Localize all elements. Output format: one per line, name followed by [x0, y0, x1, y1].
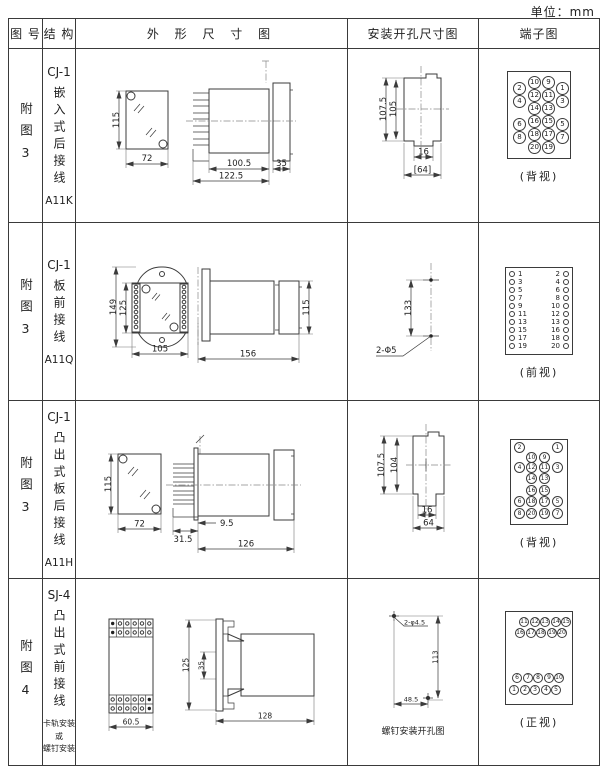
- outline-drawing-svg: 115 72 31.5 9.5 126: [76, 401, 347, 578]
- terminal-row: 9 10: [506, 302, 572, 310]
- figure-number-cell: 附图3: [8, 48, 42, 222]
- model-label: SJ-4: [48, 588, 71, 602]
- terminal-circle: 2: [514, 442, 525, 453]
- hole-spec-label: 2-φ4.5: [404, 619, 425, 627]
- terminal-circle: 3: [530, 685, 540, 695]
- mount-note-line: 或: [43, 731, 75, 744]
- terminal-circle: 14: [551, 617, 561, 627]
- terminal-circle: 12: [528, 89, 541, 102]
- terminal-circle: 5: [552, 496, 563, 507]
- install-caption: 螺钉安装开孔图: [381, 725, 444, 737]
- dim-label: 115: [104, 476, 114, 492]
- mount-type-label: 凸出式前接线: [53, 609, 65, 711]
- terminal-circle: 2: [520, 685, 530, 695]
- install-hole-svg: 107.5 105 16 [64]: [348, 49, 478, 222]
- terminal-row: 17 18: [506, 334, 572, 342]
- terminal-number-right: 10: [539, 303, 563, 310]
- terminal-circle: [563, 311, 569, 317]
- dim-label: 122.5: [219, 172, 243, 182]
- terminal-box: 1092112114314131615651817872019: [507, 71, 571, 159]
- terminal-circle: [563, 343, 569, 349]
- terminal-circle: 11: [542, 89, 555, 102]
- terminal-diagram-cell: 1112131415161718192067891012345 (正视): [478, 578, 599, 765]
- terminal-circle: 17: [526, 628, 536, 638]
- spec-table: 图 号 结 构 外 形 尺 寸 图 安装开孔尺寸图 端子图 附图3 CJ-1 嵌…: [8, 18, 600, 766]
- terminal-number-right: 2: [539, 271, 563, 278]
- terminal-circle: [563, 319, 569, 325]
- dim-label: 115: [112, 112, 122, 128]
- mount-type-label: 凸出式板后接线: [53, 431, 65, 550]
- terminal-circle: 18: [528, 128, 541, 141]
- terminal-box: 1 2 3 4 5 6 7 8: [505, 267, 573, 355]
- structure-cell: CJ-1 嵌入式后接线 A11K: [42, 48, 75, 222]
- structure-cell: CJ-1 凸出式板后接线 A11H: [42, 400, 75, 578]
- terminal-circle: 1: [552, 442, 563, 453]
- install-hole-drawing-cell: 107.5 105 16 [64]: [347, 48, 478, 222]
- terminal-circle: [563, 335, 569, 341]
- terminal-circle: 13: [542, 102, 555, 115]
- terminal-row: 3 4: [506, 278, 572, 286]
- terminal-diagram-cell: 1092112114314131615651817872019 (背视): [478, 48, 599, 222]
- terminal-circle: 9: [544, 673, 554, 683]
- terminal-circle: 19: [539, 508, 550, 519]
- terminal-box: 2110941211314131615618175820197: [510, 439, 568, 525]
- column-header-outline: 外 形 尺 寸 图: [75, 18, 347, 48]
- terminal-circle: 19: [542, 141, 555, 154]
- figure-number-cell: 附图3: [8, 222, 42, 400]
- figure-number: 附图4: [16, 639, 35, 706]
- dim-label: 107.5: [377, 453, 387, 477]
- dim-label: 126: [238, 540, 254, 550]
- terminal-circle: 18: [526, 496, 537, 507]
- dim-label: 125: [119, 300, 129, 316]
- dim-label: 35: [276, 159, 287, 169]
- terminal-number-left: 5: [515, 287, 539, 294]
- structure-cell: SJ-4 凸出式前接线 卡轨安装 或 螺钉安装: [42, 578, 75, 765]
- outline-drawing-cell: 115 72 100.5 122.5 35: [75, 48, 347, 222]
- terminal-circle: 15: [542, 115, 555, 128]
- terminal-circle: 8: [513, 131, 526, 144]
- terminal-circle: 8: [533, 673, 543, 683]
- terminal-row: 1 2: [506, 270, 572, 278]
- terminal-number-left: 9: [515, 303, 539, 310]
- terminal-circle: 13: [540, 617, 550, 627]
- terminal-circle: 5: [551, 685, 561, 695]
- terminal-number-right: 8: [539, 295, 563, 302]
- outline-drawing-svg: 60.5 125 35 128: [76, 579, 347, 765]
- figure-number-cell: 附图3: [8, 400, 42, 578]
- terminal-circle: 6: [513, 118, 526, 131]
- dim-label: 125: [182, 658, 191, 673]
- dim-label: 48.5: [404, 696, 418, 704]
- terminal-row: 13 13: [506, 318, 572, 326]
- terminal-circle: 5: [556, 118, 569, 131]
- terminal-circle: 10: [554, 673, 564, 683]
- terminal-row: 11 12: [506, 310, 572, 318]
- dim-label: 149: [109, 299, 119, 315]
- mount-note: 卡轨安装 或 螺钉安装: [43, 718, 75, 756]
- terminal-circle: 1: [509, 685, 519, 695]
- figure-number: 附图3: [16, 278, 35, 345]
- terminal-circle: 1: [556, 82, 569, 95]
- terminal-circle: 20: [526, 508, 537, 519]
- terminal-circle: 20: [528, 141, 541, 154]
- model-label: CJ-1: [47, 410, 70, 424]
- dim-label: 104: [390, 457, 400, 473]
- terminal-circle: 9: [542, 76, 555, 89]
- hole-spec-label: 2-Φ5: [376, 346, 397, 356]
- dim-label: 64: [423, 519, 434, 529]
- terminal-number-left: 17: [515, 335, 539, 342]
- terminal-circle: [563, 303, 569, 309]
- terminal-circle: 12: [526, 462, 537, 473]
- terminal-circle: 17: [539, 496, 550, 507]
- terminal-number-left: 11: [515, 311, 539, 318]
- terminal-circle: 6: [514, 496, 525, 507]
- terminal-circle: 15: [539, 485, 550, 496]
- terminal-circle: 16: [515, 628, 525, 638]
- terminal-diagram-cell: 1 2 3 4 5 6 7 8: [478, 222, 599, 400]
- dim-label: 105: [152, 345, 168, 355]
- terminal-circle: 4: [541, 685, 551, 695]
- terminal-circle: [563, 287, 569, 293]
- terminal-box: 1112131415161718192067891012345: [505, 611, 573, 705]
- terminal-number-right: 13: [539, 319, 563, 326]
- dim-label: [64]: [414, 166, 431, 176]
- terminal-number-right: 18: [539, 335, 563, 342]
- terminal-circle: 10: [528, 76, 541, 89]
- dim-label: 107.5: [379, 97, 389, 121]
- terminal-row: 7 8: [506, 294, 572, 302]
- dim-label: 156: [240, 350, 256, 360]
- terminal-circle: 4: [513, 95, 526, 108]
- terminal-circle: [563, 271, 569, 277]
- dim-label: 115: [302, 299, 312, 315]
- dim-label: 60.5: [123, 718, 140, 727]
- install-hole-drawing-cell: 133 2-Φ5: [347, 222, 478, 400]
- dim-label: 9.5: [220, 519, 234, 529]
- terminal-number-left: 3: [515, 279, 539, 286]
- terminal-number-right: 6: [539, 287, 563, 294]
- document-page: 单位：mm 图 号 结 构 外 形 尺 寸 图 安装开孔尺寸图 端子图 附图3 …: [0, 0, 607, 771]
- view-caption: (背视): [520, 168, 559, 184]
- column-header-terminal: 端子图: [478, 18, 599, 48]
- terminal-circle: 6: [512, 673, 522, 683]
- terminal-circle: 2: [513, 82, 526, 95]
- terminal-circle: 3: [552, 462, 563, 473]
- figure-number: 附图3: [16, 456, 35, 523]
- terminal-circle: 19: [547, 628, 557, 638]
- dim-label: 105: [389, 101, 399, 117]
- install-hole-svg: 107.5 104 16 64: [348, 401, 478, 578]
- type-code-label: A11Q: [45, 354, 74, 366]
- dim-label: 133: [404, 300, 414, 316]
- install-hole-svg: 133 2-Φ5: [348, 223, 478, 400]
- terminal-circle: 4: [514, 462, 525, 473]
- figure-number-cell: 附图4: [8, 578, 42, 765]
- terminal-circle: 14: [526, 473, 537, 484]
- terminal-circle: 7: [523, 673, 533, 683]
- model-label: CJ-1: [47, 65, 70, 79]
- install-hole-drawing-cell: 2-φ4.5 113 48.5 螺钉安装开孔图: [347, 578, 478, 765]
- dim-label: 16: [418, 148, 429, 158]
- terminal-circle: 12: [530, 617, 540, 627]
- terminal-circle: 11: [539, 462, 550, 473]
- install-hole-drawing-cell: 107.5 104 16 64: [347, 400, 478, 578]
- terminal-circle: [563, 279, 569, 285]
- dim-label: 35: [198, 661, 206, 670]
- terminal-circle: 7: [556, 131, 569, 144]
- terminal-number-right: 20: [539, 343, 563, 350]
- terminal-circle: 14: [528, 102, 541, 115]
- type-code-label: A11K: [45, 195, 72, 207]
- terminal-circle: 17: [542, 128, 555, 141]
- dim-label: 16: [422, 506, 433, 516]
- dim-label: 31.5: [174, 535, 193, 545]
- terminal-number-left: 1: [515, 271, 539, 278]
- terminal-circle: 8: [514, 508, 525, 519]
- terminal-number-left: 15: [515, 327, 539, 334]
- terminal-number-left: 7: [515, 295, 539, 302]
- outline-drawing-svg: 115 72 100.5 122.5 35: [76, 49, 347, 222]
- terminal-circle: 15: [561, 617, 571, 627]
- outline-drawing-cell: 115 72 31.5 9.5 126: [75, 400, 347, 578]
- terminal-circle: [563, 295, 569, 301]
- mount-note-line: 螺钉安装: [43, 743, 75, 756]
- outline-drawing-svg: 149 125 105 156 115: [76, 223, 347, 400]
- type-code-label: A11H: [45, 557, 73, 569]
- dim-label: 113: [432, 650, 440, 663]
- mount-type-label: 板前接线: [53, 279, 65, 347]
- outline-drawing-cell: 60.5 125 35 128: [75, 578, 347, 765]
- figure-number: 附图3: [16, 102, 35, 169]
- view-caption: (正视): [520, 714, 559, 730]
- model-label: CJ-1: [47, 258, 70, 272]
- dim-label: 72: [134, 520, 145, 530]
- terminal-circle: 13: [539, 473, 550, 484]
- dim-label: 128: [258, 712, 273, 721]
- mount-type-label: 嵌入式后接线: [53, 86, 65, 188]
- terminal-row: 5 6: [506, 286, 572, 294]
- terminal-diagram-cell: 2110941211314131615618175820197 (背视): [478, 400, 599, 578]
- terminal-circle: 11: [519, 617, 529, 627]
- terminal-number-left: 19: [515, 343, 539, 350]
- terminal-circle: 7: [552, 508, 563, 519]
- mount-note-line: 卡轨安装: [43, 718, 75, 731]
- view-caption: (背视): [520, 534, 559, 550]
- install-hole-svg: 2-φ4.5 113 48.5 螺钉安装开孔图: [348, 579, 478, 765]
- view-caption: (前视): [520, 364, 559, 380]
- column-header-structure: 结 构: [42, 18, 75, 48]
- terminal-row: 19 20: [506, 342, 572, 350]
- terminal-number-left: 13: [515, 319, 539, 326]
- column-header-fig-no: 图 号: [8, 18, 42, 48]
- terminal-circle: 20: [557, 628, 567, 638]
- terminal-number-right: 4: [539, 279, 563, 286]
- dim-label: 72: [142, 154, 153, 164]
- terminal-number-right: 16: [539, 327, 563, 334]
- terminal-circle: 3: [556, 95, 569, 108]
- column-header-install-holes: 安装开孔尺寸图: [347, 18, 478, 48]
- outline-drawing-cell: 149 125 105 156 115: [75, 222, 347, 400]
- dim-label: 100.5: [227, 159, 251, 169]
- structure-cell: CJ-1 板前接线 A11Q: [42, 222, 75, 400]
- terminal-row: 15 16: [506, 326, 572, 334]
- terminal-number-right: 12: [539, 311, 563, 318]
- terminal-circle: [563, 327, 569, 333]
- terminal-circle: 16: [526, 485, 537, 496]
- terminal-circle: 18: [536, 628, 546, 638]
- terminal-circle: 16: [528, 115, 541, 128]
